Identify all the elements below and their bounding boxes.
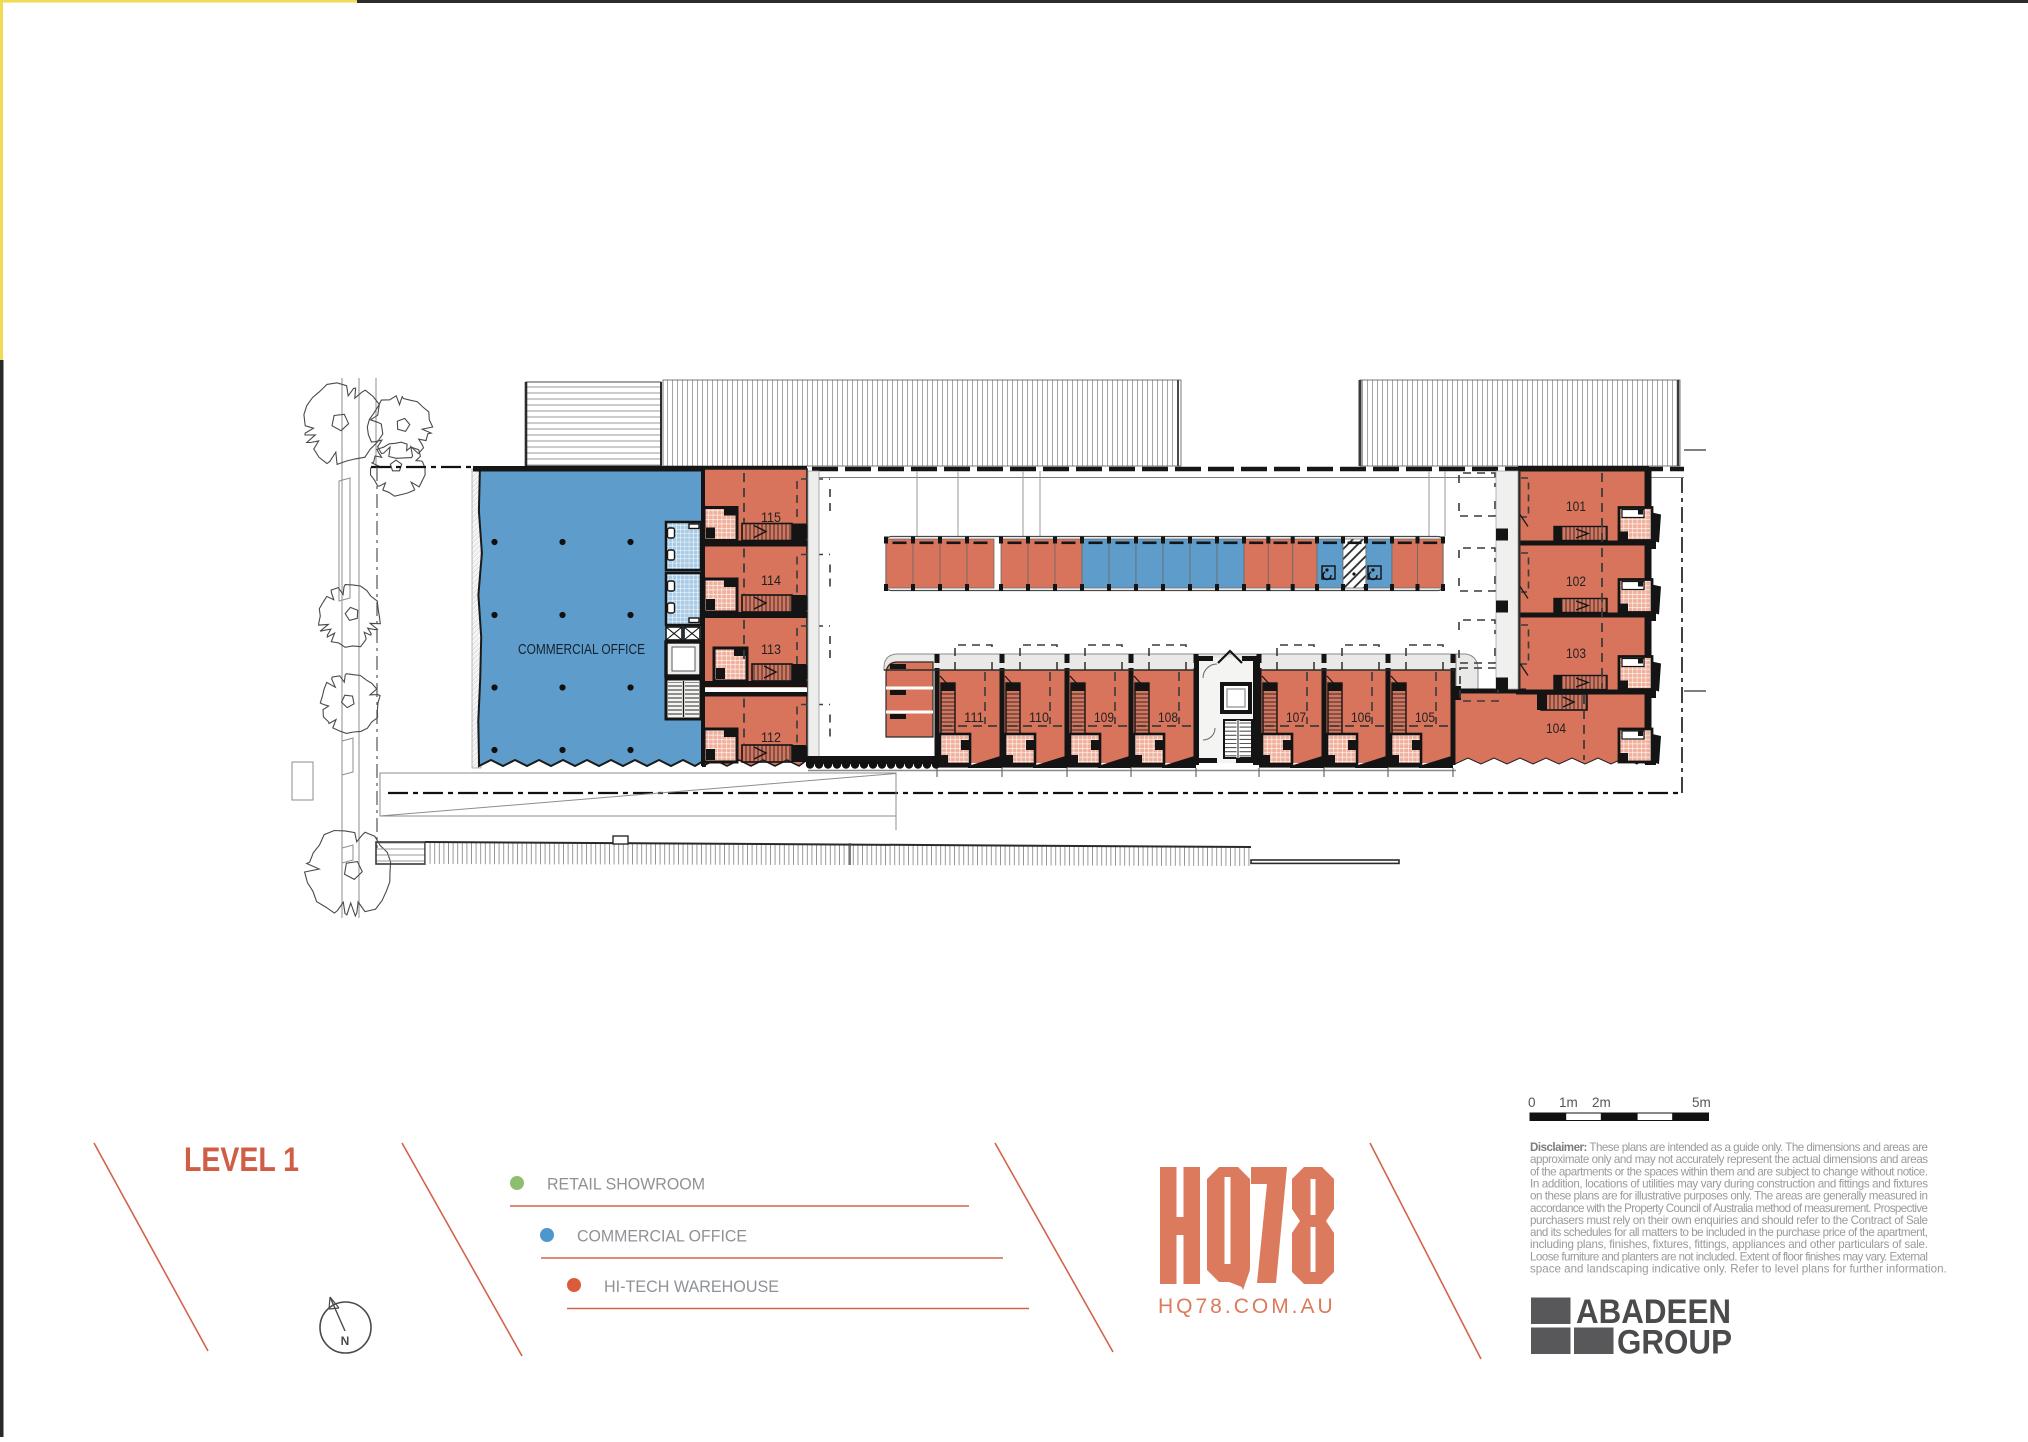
svg-text:101: 101 xyxy=(1566,499,1586,514)
svg-text:103: 103 xyxy=(1566,646,1586,661)
svg-text:COMMERCIAL OFFICE: COMMERCIAL OFFICE xyxy=(518,642,645,658)
svg-text:Disclaimer: These plans are in: Disclaimer: These plans are intended as … xyxy=(1530,1141,1928,1154)
svg-text:and its schedules for all matt: and its schedules for all matters to be … xyxy=(1530,1226,1928,1239)
svg-text:N: N xyxy=(341,1334,350,1348)
svg-text:108: 108 xyxy=(1158,710,1178,725)
svg-text:104: 104 xyxy=(1546,721,1566,736)
svg-text:102: 102 xyxy=(1566,574,1586,589)
svg-text:105: 105 xyxy=(1415,710,1435,725)
svg-text:accordance with the Property C: accordance with the Property Council of … xyxy=(1530,1202,1928,1215)
svg-text:109: 109 xyxy=(1094,710,1114,725)
svg-text:110: 110 xyxy=(1029,710,1049,725)
svg-text:114: 114 xyxy=(761,573,781,588)
svg-text:COMMERCIAL OFFICE: COMMERCIAL OFFICE xyxy=(577,1228,747,1246)
svg-text:115: 115 xyxy=(761,510,781,525)
svg-text:including plans, finishes, fix: including plans, finishes, fixtures, fit… xyxy=(1530,1238,1928,1251)
svg-text:112: 112 xyxy=(761,730,781,745)
svg-text:HI-TECH WAREHOUSE: HI-TECH WAREHOUSE xyxy=(604,1278,779,1296)
svg-text:Loose furniture and planters a: Loose furniture and planters are not inc… xyxy=(1530,1250,1928,1263)
svg-text:107: 107 xyxy=(1286,710,1306,725)
svg-text:HQ78.COM.AU: HQ78.COM.AU xyxy=(1158,1295,1336,1318)
svg-text:of the apartments or the space: of the apartments or the spaces within t… xyxy=(1530,1165,1928,1178)
svg-text:LEVEL 1: LEVEL 1 xyxy=(184,1141,299,1179)
svg-text:RETAIL SHOWROOM: RETAIL SHOWROOM xyxy=(547,1176,705,1194)
svg-text:In addition, locations of util: In addition, locations of utilities may … xyxy=(1530,1178,1928,1191)
svg-text:GROUP: GROUP xyxy=(1617,1324,1732,1362)
svg-text:111: 111 xyxy=(964,710,984,725)
svg-text:5m: 5m xyxy=(1692,1095,1711,1110)
svg-text:purchasers must rely on their: purchasers must rely on their own enquir… xyxy=(1530,1214,1928,1227)
svg-text:1m: 1m xyxy=(1559,1095,1578,1110)
svg-text:space and landscaping indicati: space and landscaping indicative only. R… xyxy=(1530,1263,1947,1276)
svg-text:approximate only and may not a: approximate only and may not accurately … xyxy=(1530,1153,1928,1166)
svg-text:0: 0 xyxy=(1528,1095,1536,1110)
svg-text:2m: 2m xyxy=(1592,1095,1611,1110)
svg-text:113: 113 xyxy=(761,642,781,657)
svg-text:106: 106 xyxy=(1351,710,1371,725)
svg-text:on these plans are for illustr: on these plans are for illustrative purp… xyxy=(1530,1190,1928,1203)
